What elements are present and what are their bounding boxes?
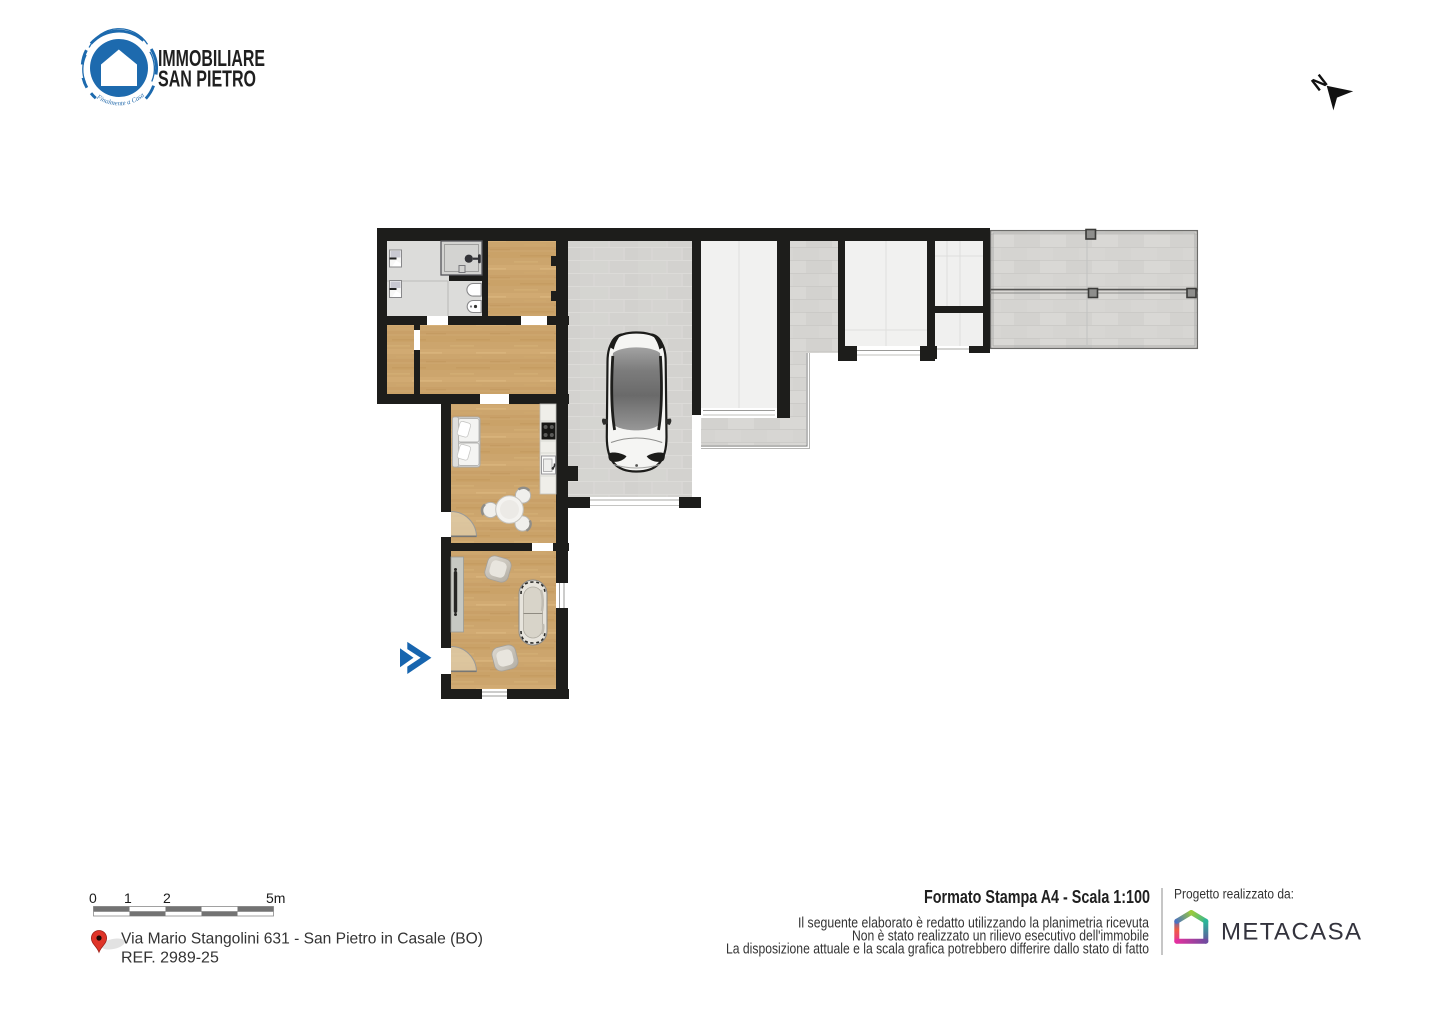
svg-text:2: 2 <box>163 890 171 906</box>
svg-text:SAN PIETRO: SAN PIETRO <box>158 66 256 92</box>
svg-text:1: 1 <box>124 890 132 906</box>
svg-text:Via Mario Stangolini 631 - San: Via Mario Stangolini 631 - San Pietro in… <box>121 931 483 948</box>
svg-text:0: 0 <box>89 890 97 906</box>
svg-text:METACASA: METACASA <box>1221 919 1363 946</box>
svg-text:La disposizione attuale e la s: La disposizione attuale e la scala grafi… <box>726 942 1149 958</box>
svg-text:Formato Stampa A4 - Scala 1:10: Formato Stampa A4 - Scala 1:100 <box>924 886 1150 907</box>
svg-text:5m: 5m <box>266 890 285 906</box>
svg-text:Progetto realizzato da:: Progetto realizzato da: <box>1174 887 1294 902</box>
svg-text:REF. 2989-25: REF. 2989-25 <box>121 950 219 967</box>
